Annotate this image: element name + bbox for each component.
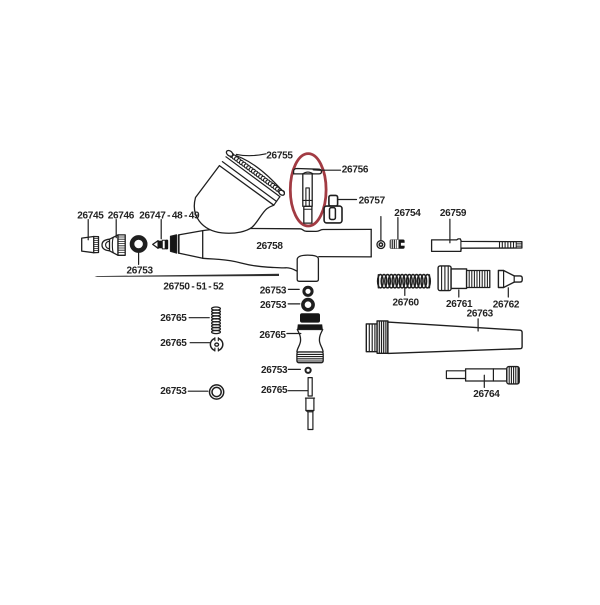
svg-text:26765: 26765: [160, 338, 187, 349]
svg-text:26753: 26753: [261, 365, 288, 376]
svg-text:26764: 26764: [473, 389, 500, 400]
svg-text:26745: 26745: [77, 211, 104, 222]
svg-text:26765: 26765: [160, 313, 187, 324]
svg-text:26758: 26758: [256, 241, 283, 252]
svg-text:26753: 26753: [127, 265, 154, 276]
svg-text:26747 - 48 - 49: 26747 - 48 - 49: [139, 211, 200, 222]
svg-text:26765: 26765: [259, 330, 286, 341]
svg-text:26756: 26756: [342, 165, 369, 176]
svg-text:26760: 26760: [393, 298, 420, 309]
svg-text:26750 - 51 - 52: 26750 - 51 - 52: [163, 281, 224, 292]
svg-text:26753: 26753: [260, 300, 287, 311]
svg-text:26759: 26759: [440, 208, 467, 219]
svg-text:26763: 26763: [467, 309, 494, 320]
svg-text:26762: 26762: [493, 300, 520, 311]
svg-text:26753: 26753: [260, 285, 287, 296]
svg-text:26754: 26754: [394, 208, 421, 219]
svg-text:26746: 26746: [108, 211, 135, 222]
svg-text:26765: 26765: [261, 385, 288, 396]
svg-text:26755: 26755: [266, 150, 293, 161]
svg-text:26753: 26753: [160, 386, 187, 397]
svg-text:26757: 26757: [359, 196, 386, 207]
